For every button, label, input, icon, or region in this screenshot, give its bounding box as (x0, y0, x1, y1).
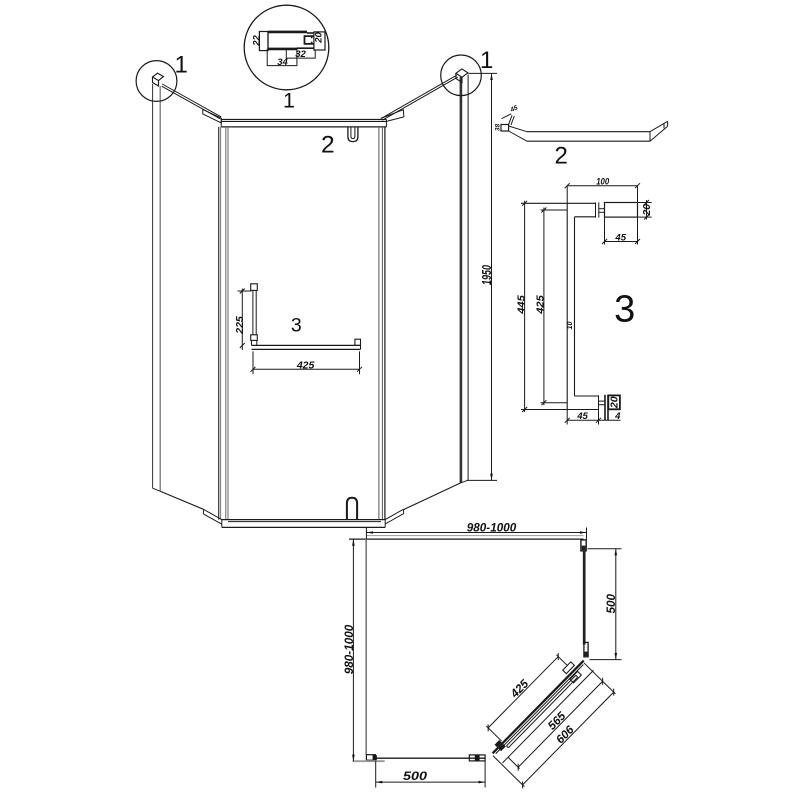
svg-text:34: 34 (277, 57, 288, 68)
svg-text:500: 500 (605, 593, 618, 613)
svg-text:425: 425 (535, 295, 547, 315)
svg-text:1: 1 (480, 47, 493, 74)
svg-text:20: 20 (608, 396, 620, 409)
svg-text:2: 2 (321, 132, 335, 159)
svg-text:10: 10 (565, 322, 574, 330)
svg-text:500: 500 (403, 770, 428, 783)
svg-text:1950: 1950 (480, 265, 494, 285)
svg-text:32: 32 (295, 49, 306, 60)
svg-text:980-1000: 980-1000 (343, 624, 356, 674)
svg-text:4: 4 (614, 411, 621, 422)
svg-text:45: 45 (576, 411, 588, 422)
svg-text:2: 2 (555, 143, 568, 170)
svg-text:225: 225 (234, 316, 246, 335)
svg-text:20: 20 (313, 32, 324, 44)
svg-text:1: 1 (283, 89, 295, 113)
svg-text:425: 425 (296, 359, 315, 371)
svg-text:1: 1 (175, 52, 188, 79)
svg-text:20: 20 (641, 204, 653, 217)
svg-text:3: 3 (291, 315, 302, 337)
svg-text:38: 38 (494, 124, 501, 132)
svg-text:22: 22 (251, 35, 262, 47)
svg-text:445: 445 (515, 295, 527, 315)
svg-text:100: 100 (596, 177, 610, 188)
svg-text:980-1000: 980-1000 (467, 521, 517, 534)
svg-text:45: 45 (614, 233, 626, 244)
svg-text:3: 3 (614, 289, 635, 331)
